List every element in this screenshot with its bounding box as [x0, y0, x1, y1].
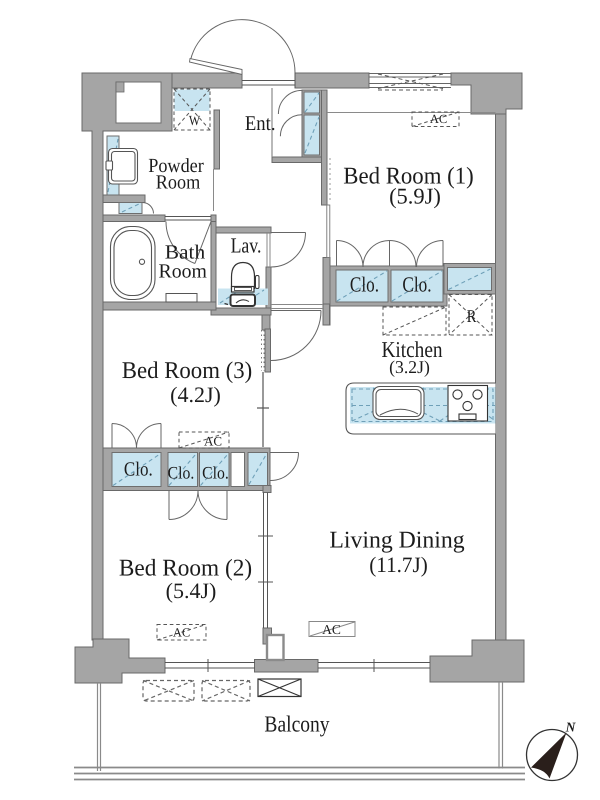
- svg-text:Lav.: Lav.: [231, 234, 262, 258]
- svg-text:Room: Room: [158, 261, 207, 283]
- svg-text:Living Dining: Living Dining: [329, 528, 464, 554]
- svg-text:(4.2J): (4.2J): [170, 382, 221, 407]
- svg-text:Clo.: Clo.: [168, 463, 195, 483]
- svg-text:AC: AC: [204, 434, 222, 449]
- svg-text:Bed Room (3): Bed Room (3): [122, 358, 252, 384]
- svg-text:(11.7J): (11.7J): [369, 552, 427, 577]
- svg-text:Clo.: Clo.: [124, 459, 153, 481]
- svg-text:R: R: [467, 306, 477, 326]
- svg-text:(3.2J): (3.2J): [389, 357, 430, 377]
- svg-text:N: N: [565, 720, 577, 735]
- svg-text:AC: AC: [430, 112, 447, 126]
- svg-text:(5.9J): (5.9J): [389, 183, 441, 208]
- svg-text:Room: Room: [156, 172, 201, 194]
- svg-text:W: W: [189, 114, 201, 129]
- svg-text:Balcony: Balcony: [264, 711, 330, 736]
- svg-text:Clo.: Clo.: [202, 463, 229, 483]
- svg-text:(5.4J): (5.4J): [166, 578, 217, 603]
- svg-text:AC: AC: [173, 626, 190, 640]
- svg-text:Clo.: Clo.: [402, 273, 431, 297]
- svg-text:AC: AC: [322, 622, 341, 637]
- svg-text:Clo.: Clo.: [350, 273, 379, 297]
- svg-text:Ent.: Ent.: [245, 111, 276, 135]
